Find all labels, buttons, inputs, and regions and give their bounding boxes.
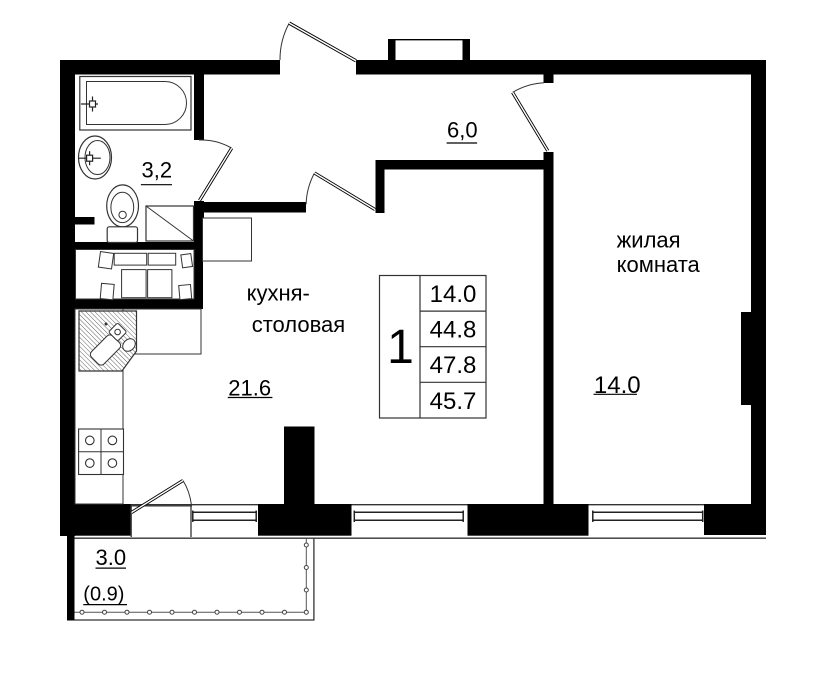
svg-text:комната: комната xyxy=(617,252,701,277)
svg-text:жилая: жилая xyxy=(617,227,681,252)
svg-text:1: 1 xyxy=(387,321,414,374)
svg-text:3,2: 3,2 xyxy=(142,158,173,183)
svg-text:6,0: 6,0 xyxy=(447,118,478,143)
svg-text:столовая: столовая xyxy=(252,312,346,337)
svg-text:44.8: 44.8 xyxy=(430,317,477,344)
svg-text:45.7: 45.7 xyxy=(430,388,477,415)
svg-text:3.0: 3.0 xyxy=(96,545,127,570)
svg-text:(0.9): (0.9) xyxy=(83,583,124,605)
svg-text:кухня-: кухня- xyxy=(247,280,310,305)
svg-text:14.0: 14.0 xyxy=(430,281,477,308)
svg-text:47.8: 47.8 xyxy=(430,352,477,379)
